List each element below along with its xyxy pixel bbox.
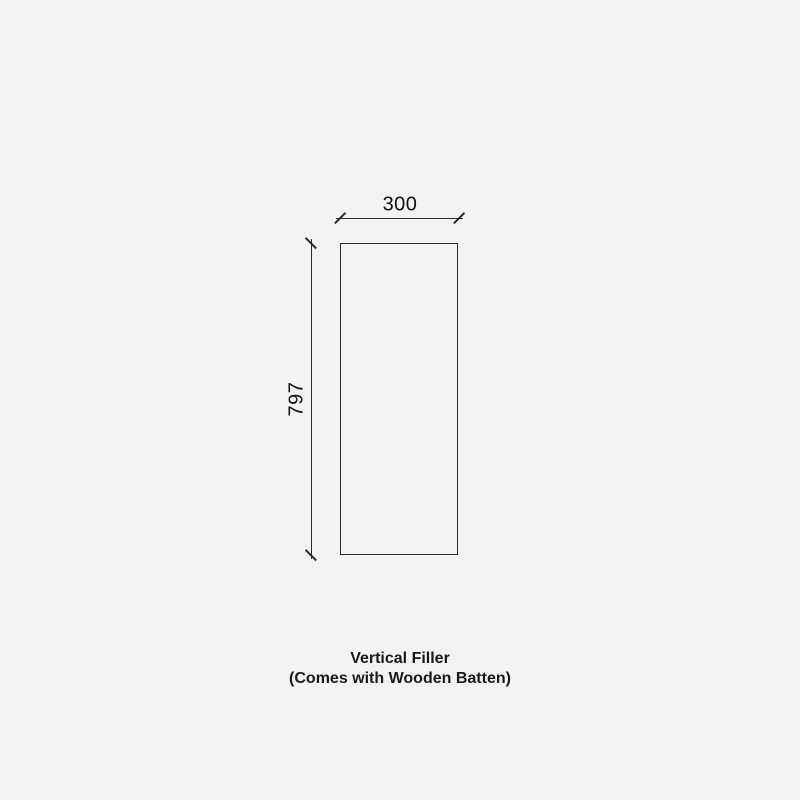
drawing-canvas: 300 797 Vertical Filler (Comes with Wood… (0, 0, 800, 800)
caption-subtitle: (Comes with Wooden Batten) (0, 669, 800, 689)
caption: Vertical Filler (Comes with Wooden Batte… (0, 649, 800, 689)
caption-title: Vertical Filler (0, 649, 800, 669)
height-dimension-line (311, 239, 312, 559)
width-dimension-label: 300 (383, 194, 418, 217)
vertical-filler-outline (340, 243, 458, 555)
width-dimension-line (336, 218, 463, 219)
height-dimension-label: 797 (286, 382, 309, 417)
